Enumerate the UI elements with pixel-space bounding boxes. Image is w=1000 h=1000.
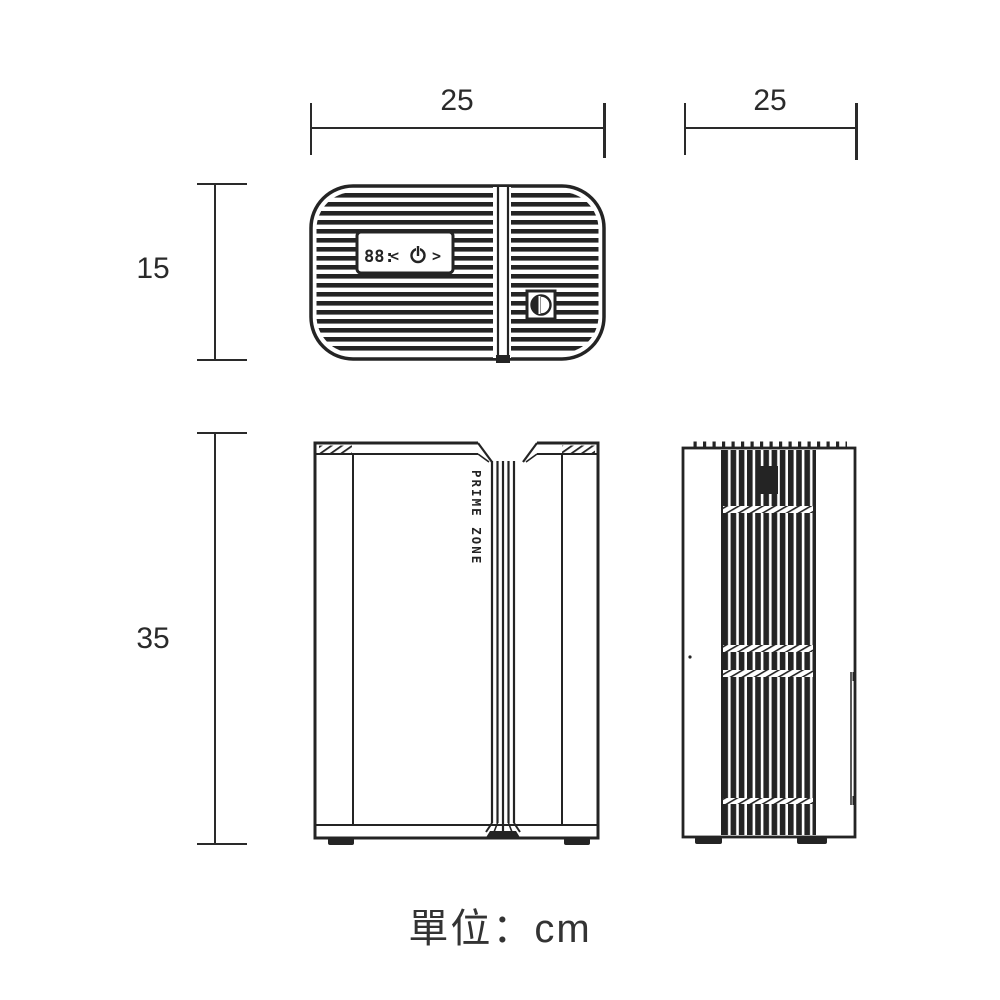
side-door-nub (853, 672, 856, 681)
next-button-icon: > (432, 247, 441, 265)
dimension-line-side-width (685, 127, 857, 129)
dimension-tick-bottom (197, 359, 247, 361)
side-door-nub (853, 796, 856, 805)
dimension-label-top-height: 15 (130, 254, 176, 284)
center-channel (486, 461, 520, 838)
panel-pin-dot (688, 655, 691, 658)
unit-note: 單位：cm (350, 896, 650, 954)
dimension-line-top-height (214, 184, 216, 360)
dimension-label-side-width: 25 (740, 86, 800, 116)
top-corner-vent-hatch (319, 446, 352, 454)
brand-logo-text: PRIME ZONE (469, 470, 484, 565)
dimension-tick-left (310, 103, 312, 155)
front-view-drawing: PRIME ZONE (300, 430, 620, 860)
dimension-tick-bottom (197, 843, 247, 845)
prev-button-icon: < (390, 247, 399, 265)
dimension-tick-top (197, 183, 247, 185)
top-corner-vent-hatch (562, 446, 595, 454)
dimension-tick-left (684, 103, 686, 155)
dimension-tick-right (855, 103, 858, 160)
side-view-drawing (665, 430, 870, 860)
front-view-body-outline (315, 443, 598, 838)
vent-center-block (760, 466, 778, 494)
top-view-drawing: 88: < > (300, 175, 615, 370)
dimension-tick-top (197, 432, 247, 434)
front-foot-left (328, 838, 354, 845)
top-view-divider-foot (496, 355, 510, 363)
side-foot-right (797, 837, 827, 844)
dimension-line-top-width (311, 127, 605, 129)
dimension-line-front-height (214, 433, 216, 844)
top-dip-gap (478, 439, 537, 446)
front-foot-right (564, 838, 590, 845)
side-foot-left (695, 837, 722, 844)
channel-foot (486, 831, 520, 838)
dimension-tick-right (603, 103, 606, 158)
dimension-label-top-width: 25 (427, 86, 487, 116)
dimension-label-front-height: 35 (130, 624, 176, 654)
knob-dial (527, 291, 555, 319)
